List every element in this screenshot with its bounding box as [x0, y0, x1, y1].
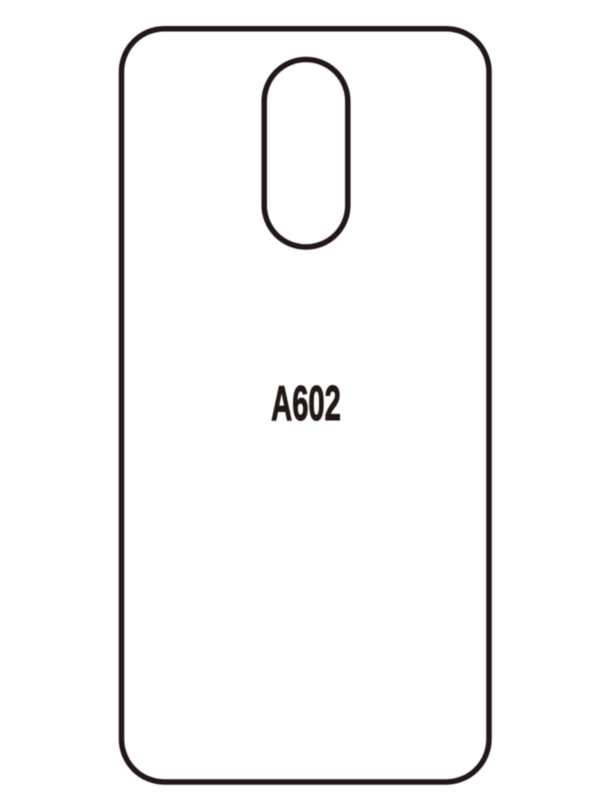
svg-text:A602: A602 [271, 375, 341, 431]
